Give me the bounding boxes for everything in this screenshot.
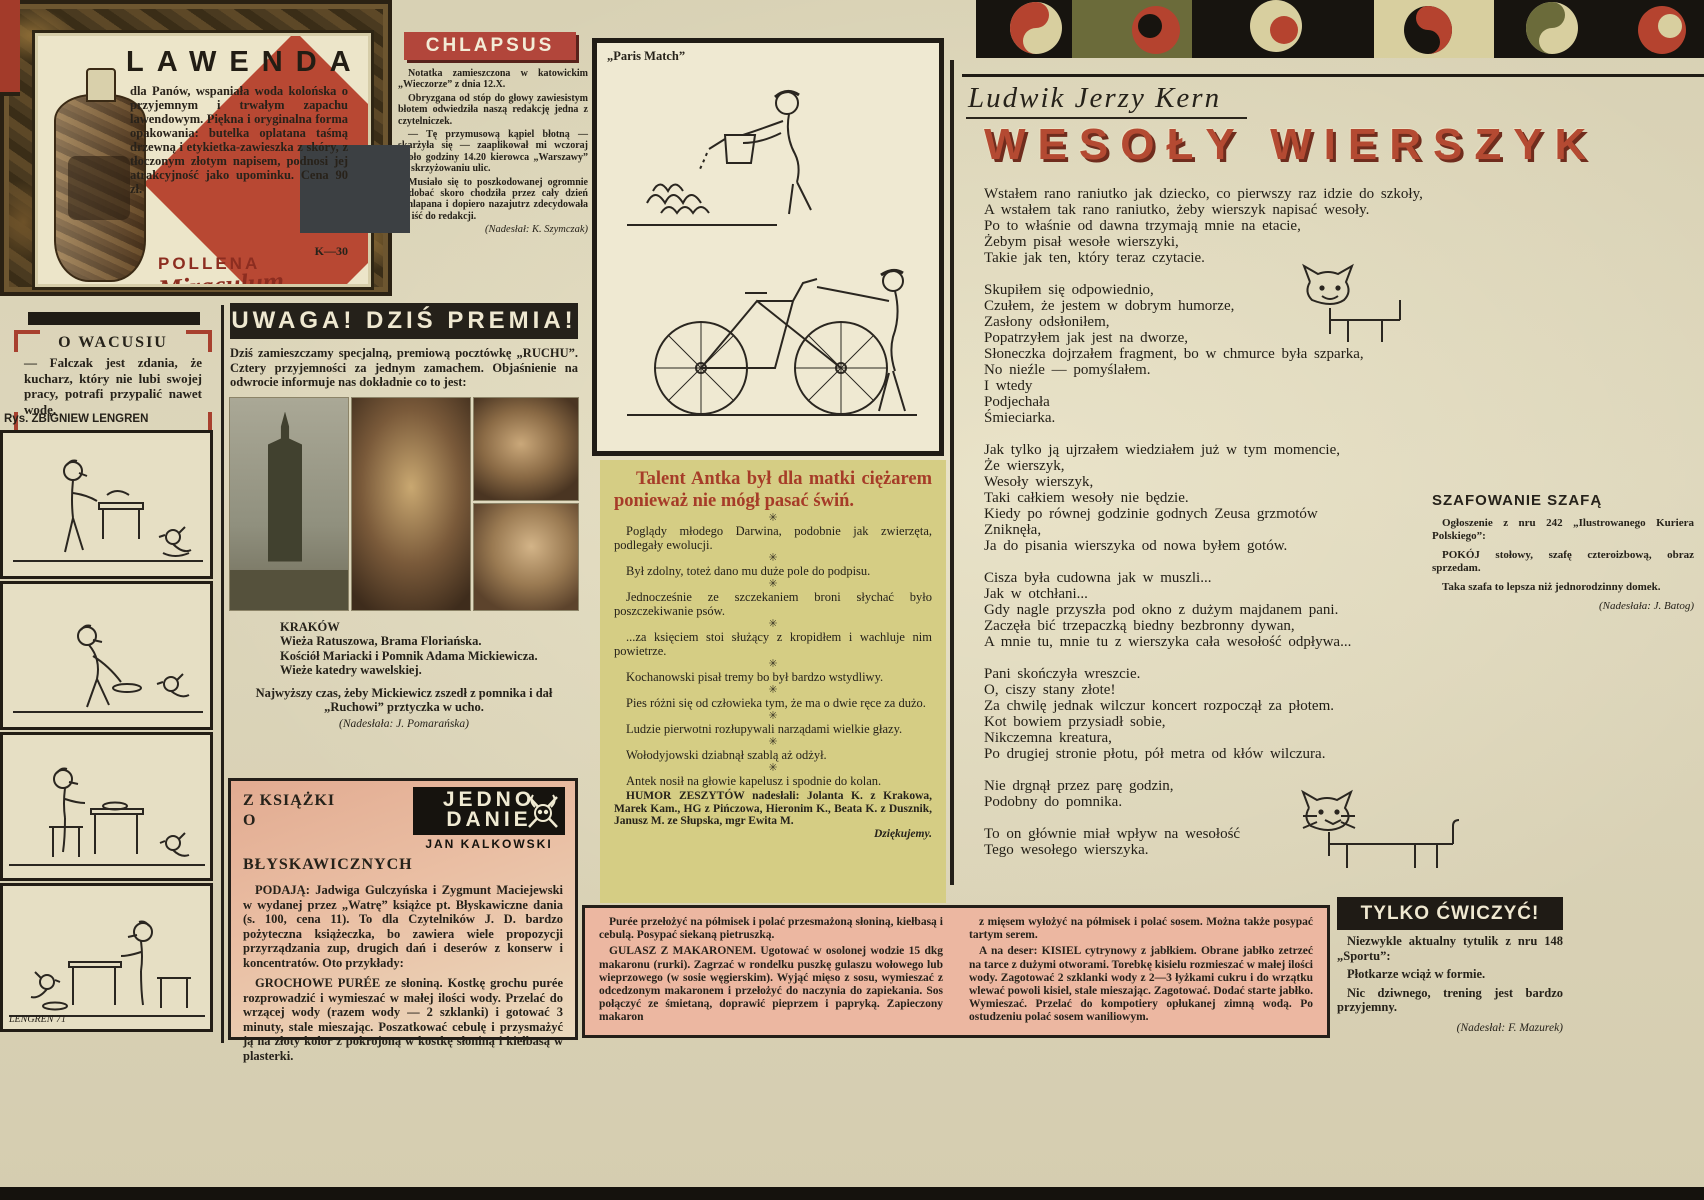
column-rule-right <box>950 60 954 885</box>
tylko-cwiczyc-body: Niezwykle aktualny tytulik z nru 148 „Sp… <box>1337 934 1563 1015</box>
szafowanie-paragraph: Taka szafa to lepsza niż jednorodzinny d… <box>1432 581 1694 594</box>
comic-panel-3 <box>0 732 213 881</box>
illustrator-credit: Rys. ZBIGNIEW LENGREN <box>4 413 148 425</box>
uwaga-section: UWAGA! DZIŚ PREMIA! Dziś zamieszczamy sp… <box>230 303 578 730</box>
lawenda-advert: LAWENDA dla Panów, wspaniała woda kolońs… <box>38 36 368 284</box>
humor-item: ✳ Był zdolny, toteż dano mu duże pole do… <box>614 552 932 578</box>
comic-panel-1 <box>0 430 213 579</box>
humor-item: ✳ Jednocześnie ze szczekaniem broni słyc… <box>614 578 932 618</box>
asterisk-separator-icon: ✳ <box>614 736 932 748</box>
humor-title: Talent Antka był dla matki ciężarem poni… <box>614 468 932 512</box>
cartoon-drawing <box>597 43 939 443</box>
header-rule <box>962 74 1704 77</box>
humor-item: ✳ Pies różni się od człowieka tym, że ma… <box>614 684 932 710</box>
uwaga-credit: (Nadesłała: J. Pomarańska) <box>230 718 578 730</box>
szafowanie-column: SZAFOWANIE SZAFĄ Ogłoszenie z nru 242 „I… <box>1432 492 1694 613</box>
chlapsus-paragraph: Notatka zamieszczona w katowickim „Wiecz… <box>398 68 588 91</box>
chlapsus-credit: (Nadesłał: K. Szymczak) <box>398 224 588 235</box>
tylko-paragraph: Niezwykle aktualny tytulik z nru 148 „Sp… <box>1337 934 1563 963</box>
z-ksiazki-paragraph: PODAJĄ: Jadwiga Gulczyńska i Zygmunt Mac… <box>243 883 563 970</box>
recipe-column-right: z mięsem wyłożyć na półmisek i polać sos… <box>969 916 1313 1027</box>
humor-item: ✳ Ludzie pierwotni rozłupywali narządami… <box>614 710 932 736</box>
recipe-box: Purée przełożyć na półmisek i polać prze… <box>582 905 1330 1038</box>
humor-thanks: Dziękujemy. <box>614 828 932 840</box>
bottom-black-bar <box>0 1187 1704 1200</box>
chlapsus-paragraph: Musiało się to poszkodowanej ogromnie po… <box>398 177 588 223</box>
humor-items: ✳ Poglądy młodego Darwina, podobnie jak … <box>614 512 932 788</box>
logo-line2: DANIE <box>446 808 531 831</box>
chlapsus-paragraph: Obryzgana od stóp do głowy zawiesistym b… <box>398 93 588 127</box>
red-corner <box>14 330 40 352</box>
uwaga-note: Najwyższy czas, żeby Mickiewicz zszedł z… <box>230 686 578 715</box>
o-wacusiu-title: O WACUSIU <box>24 334 202 352</box>
magazine-page: LAWENDA dla Panów, wspaniała woda kolońs… <box>0 0 1704 1200</box>
photo-town-hall-tower <box>230 398 348 610</box>
recipe-paragraph: z mięsem wyłożyć na półmisek i polać sos… <box>969 916 1313 942</box>
poem-title: WESOŁY WIERSZYK <box>984 120 1598 170</box>
logo-author: JAN KALKOWSKI <box>413 837 565 851</box>
photo-church-interior <box>352 398 470 610</box>
asterisk-separator-icon: ✳ <box>614 552 932 564</box>
paris-match-cartoon: „Paris Match” <box>592 38 944 456</box>
tylko-paragraph: Płotkarze wciąż w formie. <box>1337 967 1563 982</box>
humor-credit: HUMOR ZESZYTÓW nadesłali: Jolanta K. z K… <box>614 790 932 828</box>
humor-item: ✳ ...za księciem stoi służący z kropidłe… <box>614 618 932 658</box>
red-corner <box>186 330 212 352</box>
o-wacusiu-body: — Falczak jest zdania, że kucharz, który… <box>24 355 202 417</box>
ornate-picture-frame: LAWENDA dla Panów, wspaniała woda kolońs… <box>0 0 392 296</box>
recipe-paragraph: Purée przełożyć na półmisek i polać prze… <box>599 916 943 942</box>
asterisk-separator-icon: ✳ <box>614 762 932 774</box>
z-ksiazki-box: JEDNO DANIE JAN KALKOWSKI Z KSIĄŻKI O BŁ… <box>228 778 578 1040</box>
cat-doodle-icon <box>1290 248 1440 358</box>
abstract-artwork <box>976 0 1704 58</box>
recipe-column-left: Purée przełożyć na półmisek i polać prze… <box>599 916 943 1027</box>
comic-signature: LENGREN 71 <box>9 1014 66 1025</box>
photo-monument <box>474 398 578 500</box>
asterisk-separator-icon: ✳ <box>614 512 932 524</box>
chlapsus-body: Notatka zamieszczona w katowickim „Wiecz… <box>398 68 588 222</box>
jedno-danie-logo: JEDNO DANIE JAN KALKOWSKI <box>413 787 565 851</box>
asterisk-separator-icon: ✳ <box>614 578 932 590</box>
szafowanie-credit: (Nadesłała: J. Batog) <box>1432 600 1694 613</box>
szafowanie-paragraph: Ogłoszenie z nru 242 „Ilustrowanego Kuri… <box>1432 517 1694 543</box>
paris-match-label: „Paris Match” <box>607 49 685 64</box>
tylko-cwiczyc-banner: TYLKO ĆWICZYĆ! <box>1337 897 1563 930</box>
comic-panel-4: LENGREN 71 <box>0 883 213 1032</box>
z-ksiazki-paragraph: GROCHOWE PURÉE ze słoniną. Kostkę grochu… <box>243 976 563 1063</box>
lawenda-title: LAWENDA <box>126 46 364 79</box>
comic-panel-2 <box>0 581 213 730</box>
szafowanie-paragraph: POKÓJ stołowy, szafę czteroizbową, obraz… <box>1432 549 1694 575</box>
asterisk-separator-icon: ✳ <box>614 658 932 670</box>
humor-zeszytow-box: Talent Antka był dla matki ciężarem poni… <box>600 460 946 903</box>
lawenda-body: dla Panów, wspaniała woda kolońska o prz… <box>130 84 348 196</box>
humor-item: ✳ Kochanowski pisał tremy bo był bardzo … <box>614 658 932 684</box>
lengren-comic-strip: LENGREN 71 <box>0 430 219 1034</box>
asterisk-separator-icon: ✳ <box>614 710 932 722</box>
poem-author: Ludwik Jerzy Kern <box>966 82 1247 119</box>
photo-caption: KRAKÓW Wieża Ratuszowa, Brama Floriańska… <box>280 620 578 678</box>
black-bar <box>28 312 200 325</box>
asterisk-separator-icon: ✳ <box>614 684 932 696</box>
uwaga-banner: UWAGA! DZIŚ PREMIA! <box>230 303 578 339</box>
chlapsus-paragraph: — Tę przymusową kąpiel błotną — skarżyła… <box>398 129 588 175</box>
asterisk-separator-icon: ✳ <box>614 618 932 630</box>
szafowanie-title: SZAFOWANIE SZAFĄ <box>1432 492 1694 509</box>
szafowanie-body: Ogłoszenie z nru 242 „Ilustrowanego Kuri… <box>1432 517 1694 594</box>
tylko-cwiczyc-box: TYLKO ĆWICZYĆ! Niezwykle aktualny tytuli… <box>1337 897 1563 1035</box>
postcard-photos <box>230 398 578 610</box>
chlapsus-banner: CHLAPSUS <box>404 32 576 60</box>
humor-item: ✳ Wołodyjowski dziabnął szablą aż odżył. <box>614 736 932 762</box>
column-rule-left <box>221 305 224 1043</box>
z-ksiazki-body: PODAJĄ: Jadwiga Gulczyńska i Zygmunt Mac… <box>243 883 563 1063</box>
cat-doodle-long-icon <box>1295 782 1465 872</box>
humor-item: ✳ Poglądy młodego Darwina, podobnie jak … <box>614 512 932 552</box>
frame-red-accent <box>0 0 20 92</box>
uwaga-intro: Dziś zamieszczamy specjalną, premiową po… <box>230 346 578 390</box>
chlapsus-column: CHLAPSUS Notatka zamieszczona w katowick… <box>398 32 588 235</box>
bull-icon <box>523 791 563 831</box>
pollena-miraculum-logo: POLLENA Miraculum <box>158 254 284 284</box>
humor-item: ✳ Antek nosił na głowie kapelusz i spodn… <box>614 762 932 788</box>
recipe-paragraph: GULASZ Z MAKARONEM. Ugotować w osolonej … <box>599 945 943 1024</box>
photo-cathedral-towers <box>474 504 578 610</box>
recipe-paragraph: A na deser: KISIEL cytrynowy z jabłkiem.… <box>969 945 1313 1024</box>
tylko-paragraph: Nic dziwnego, trening jest bardzo przyje… <box>1337 986 1563 1015</box>
tylko-credit: (Nadesłał: F. Mazurek) <box>1337 1021 1563 1036</box>
